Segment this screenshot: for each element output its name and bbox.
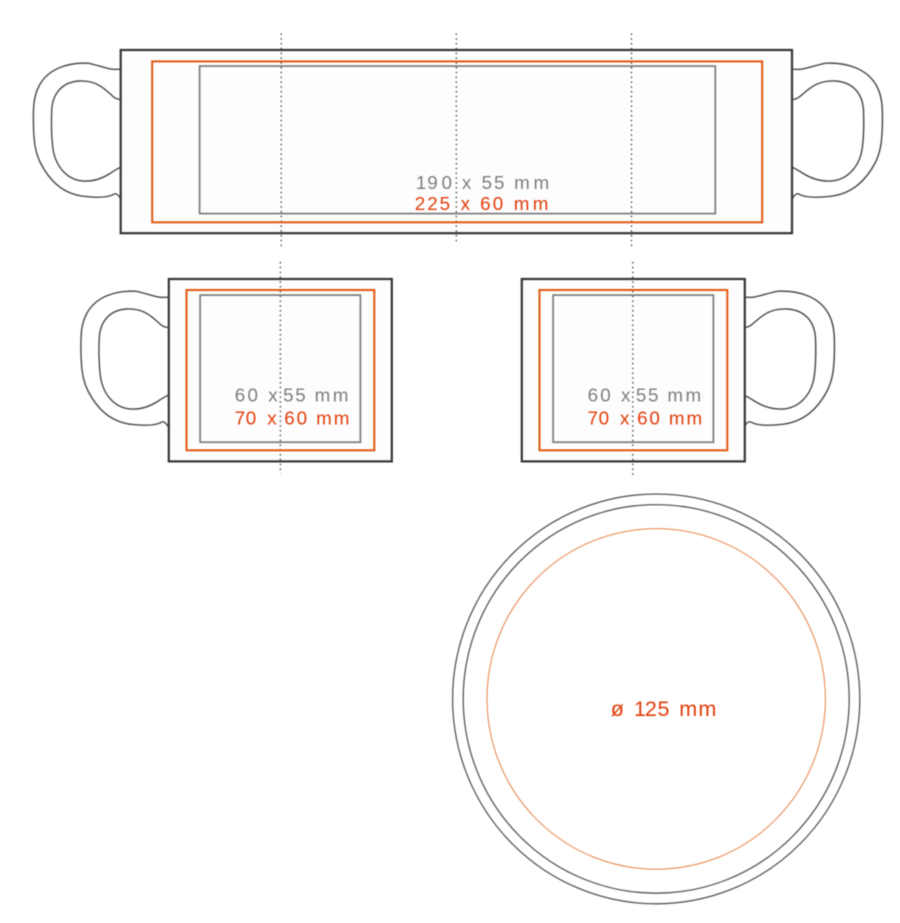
svg-text:225 x 60 mm: 225 x 60 mm — [415, 193, 549, 214]
svg-text:190 x 55 mm: 190 x 55 mm — [416, 172, 549, 193]
svg-text:ø 125 mm: ø 125 mm — [611, 696, 717, 721]
